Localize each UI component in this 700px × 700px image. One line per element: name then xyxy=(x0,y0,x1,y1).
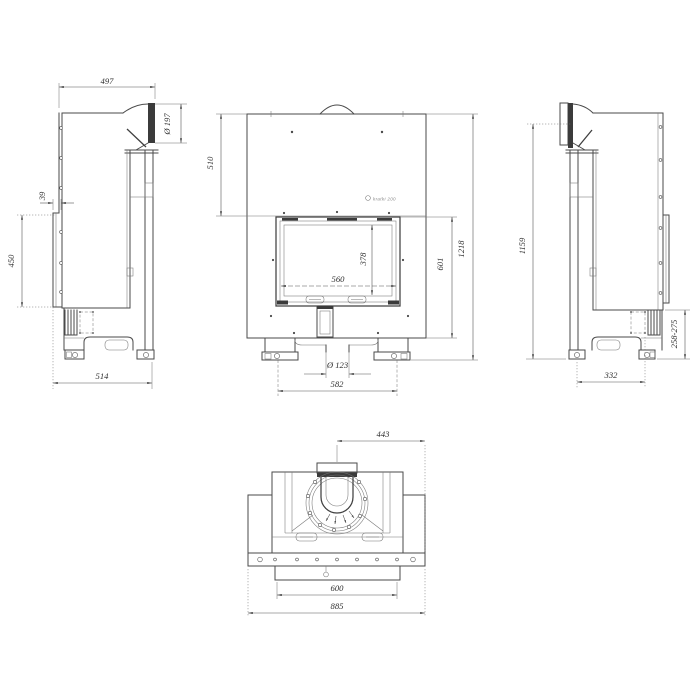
dim-feet-spacing-front: 582 xyxy=(331,379,345,389)
dim-door-offset: 39 xyxy=(37,191,47,201)
dim-door-height: 450 xyxy=(6,254,16,268)
flue-flange-right xyxy=(568,103,573,148)
technical-drawing: 497 Ø 197 39 450 514 xyxy=(0,0,700,700)
top-view: 443 600 885 xyxy=(248,429,425,617)
glass-door xyxy=(276,217,400,306)
dim-top-section-height: 510 xyxy=(205,156,215,170)
dim-base-plate-width: 600 xyxy=(331,583,345,593)
dim-top-depth: 497 xyxy=(101,76,115,86)
left-side-view: 497 Ø 197 39 450 514 xyxy=(6,76,187,389)
flue-flange xyxy=(148,103,155,143)
flue-collar xyxy=(306,472,368,534)
right-side-view: 1159 258-275 332 xyxy=(517,103,690,388)
dim-flue-axis-height: 1159 xyxy=(517,237,527,254)
dim-feet-spacing-side: 332 xyxy=(604,370,619,380)
right-side-structure xyxy=(560,103,669,359)
dim-glass-width: 560 xyxy=(332,274,346,284)
front-dimensions: 510 560 378 601 1218 Ø 123 582 xyxy=(205,114,478,396)
right-side-dimensions: 1159 258-275 332 xyxy=(517,124,690,388)
flue-pipe-arc xyxy=(320,105,354,114)
dim-flue-center-to-front: 443 xyxy=(377,429,390,439)
left-side-dimensions: 497 Ø 197 39 450 514 xyxy=(6,76,187,389)
brand-logo-icon xyxy=(366,196,371,201)
dim-total-height: 1218 xyxy=(456,240,466,258)
dim-rear-height-range: 258-275 xyxy=(669,319,679,348)
dim-base-depth: 514 xyxy=(96,371,110,381)
dim-lower-section-height: 601 xyxy=(435,258,445,271)
dim-flue-diameter: Ø 197 xyxy=(162,113,172,136)
dim-air-inlet-diameter: Ø 123 xyxy=(326,360,348,370)
front-structure: kratki 200 xyxy=(247,105,426,360)
dim-glass-height: 378 xyxy=(358,252,368,267)
left-side-structure xyxy=(53,103,158,389)
front-view: kratki 200 xyxy=(205,105,478,396)
top-structure xyxy=(248,463,425,580)
base-plate xyxy=(275,566,400,580)
drawing-page: 497 Ø 197 39 450 514 xyxy=(0,0,700,700)
brand-logo-text: kratki 200 xyxy=(373,196,396,201)
dim-overall-width: 885 xyxy=(331,601,345,611)
top-dimensions: 443 600 885 xyxy=(248,429,425,617)
brand-logo: kratki 200 xyxy=(366,196,396,202)
